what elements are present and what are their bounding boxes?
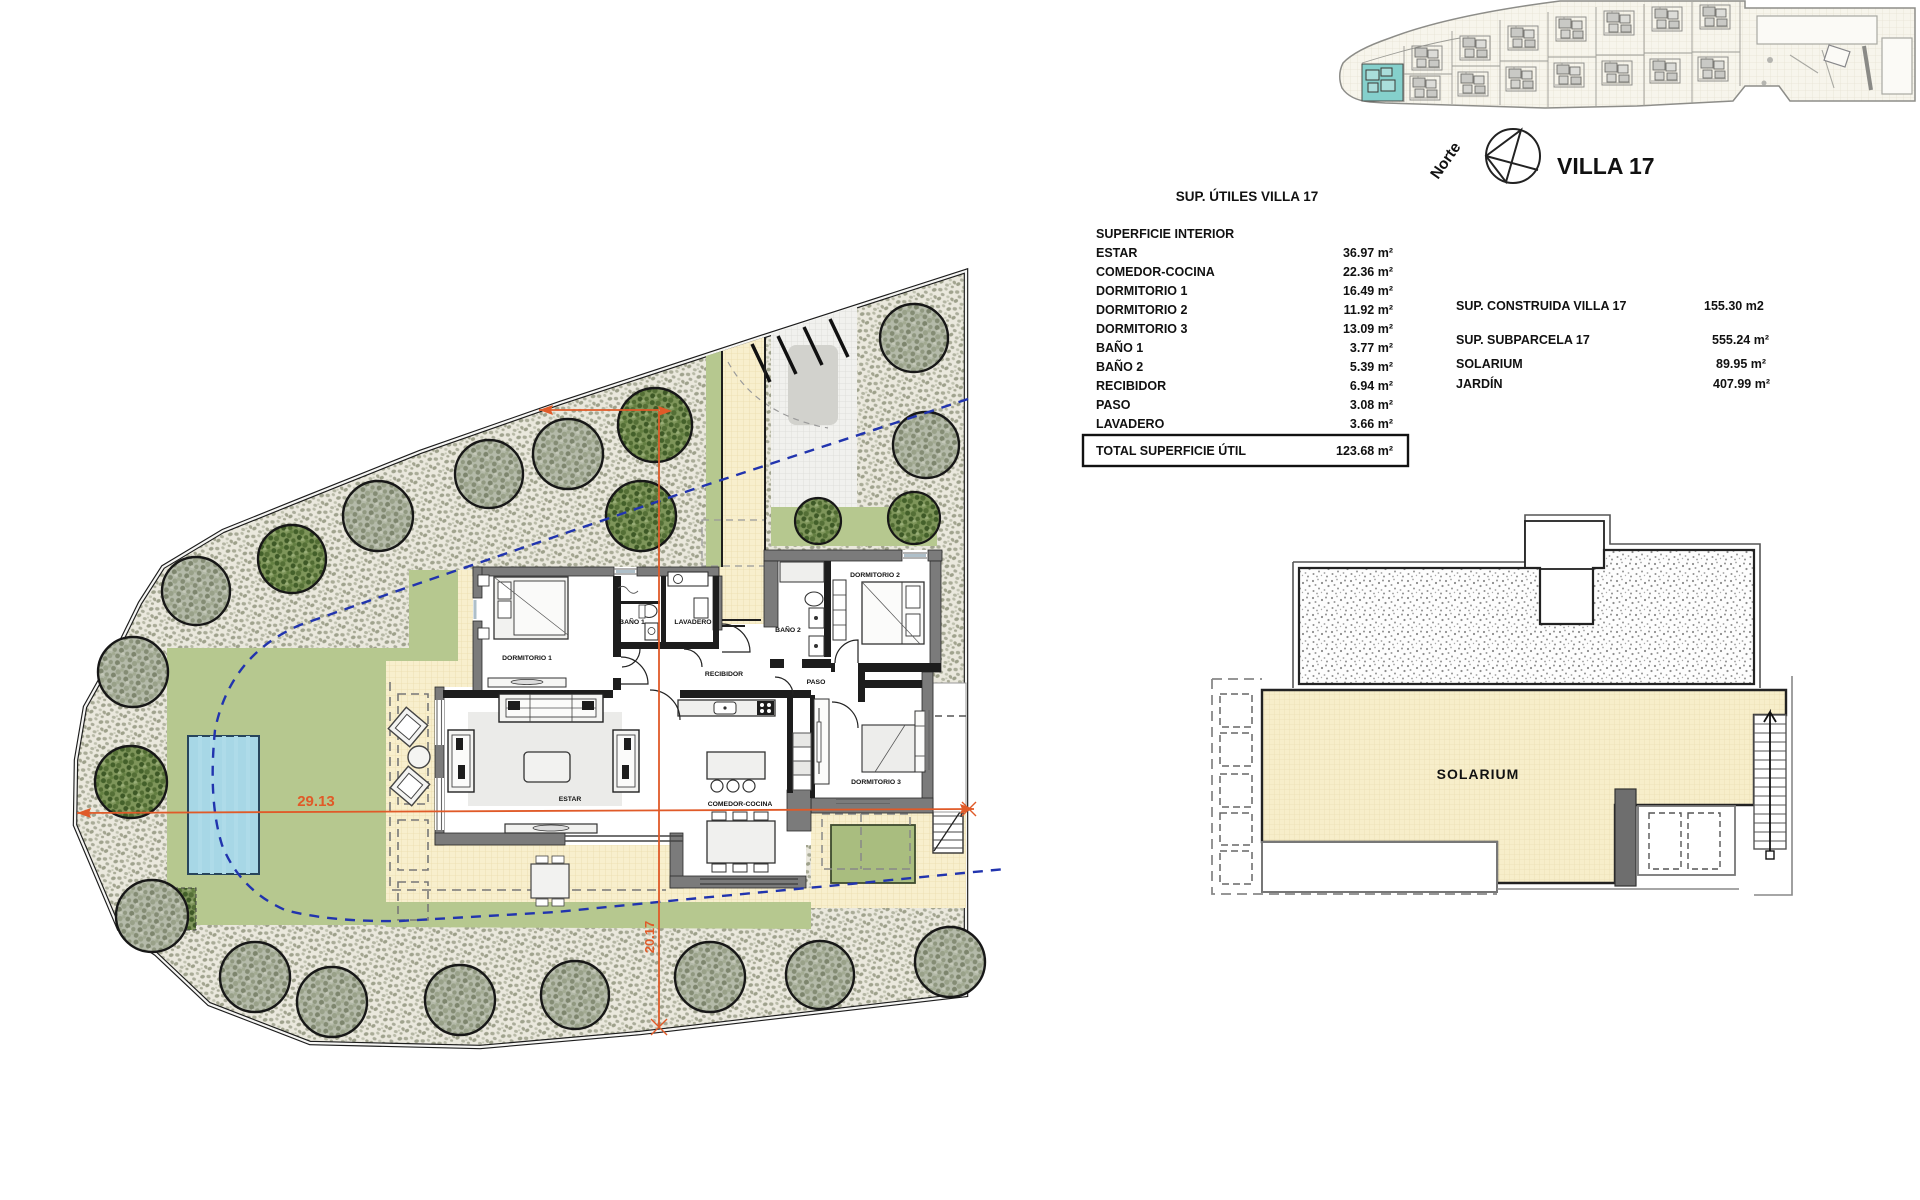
svg-text:89.95 m²: 89.95 m²: [1716, 357, 1766, 371]
svg-text:BAÑO 2: BAÑO 2: [1096, 359, 1143, 374]
svg-text:LAVADERO: LAVADERO: [1096, 417, 1165, 431]
svg-text:DORMITORIO 2: DORMITORIO 2: [1096, 303, 1187, 317]
svg-text:SOLARIUM: SOLARIUM: [1437, 766, 1520, 782]
svg-text:SUP. CONSTRUIDA VILLA 17: SUP. CONSTRUIDA VILLA 17: [1456, 299, 1626, 313]
svg-text:DORMITORIO 1: DORMITORIO 1: [1096, 284, 1187, 298]
svg-text:DORMITORIO 1: DORMITORIO 1: [502, 655, 552, 662]
svg-text:SUPERFICIE INTERIOR: SUPERFICIE INTERIOR: [1096, 227, 1234, 241]
svg-text:22.36 m²: 22.36 m²: [1343, 265, 1393, 279]
svg-text:TOTAL SUPERFICIE ÚTIL: TOTAL SUPERFICIE ÚTIL: [1096, 443, 1246, 458]
svg-text:COMEDOR-COCINA: COMEDOR-COCINA: [708, 801, 773, 808]
svg-text:ESTAR: ESTAR: [1096, 246, 1137, 260]
svg-text:BAÑO 1: BAÑO 1: [619, 617, 645, 626]
svg-text:DORMITORIO 3: DORMITORIO 3: [1096, 322, 1187, 336]
svg-text:6.94 m²: 6.94 m²: [1350, 379, 1393, 393]
svg-text:36.97 m²: 36.97 m²: [1343, 246, 1393, 260]
svg-text:ESTAR: ESTAR: [559, 796, 582, 803]
svg-text:JARDÍN: JARDÍN: [1456, 376, 1503, 391]
svg-text:SUP. ÚTILES VILLA 17: SUP. ÚTILES VILLA 17: [1176, 189, 1319, 204]
svg-text:RECIBIDOR: RECIBIDOR: [705, 671, 743, 678]
svg-text:RECIBIDOR: RECIBIDOR: [1096, 379, 1166, 393]
svg-text:BAÑO 1: BAÑO 1: [1096, 340, 1143, 355]
svg-text:SUP. SUBPARCELA 17: SUP. SUBPARCELA 17: [1456, 333, 1590, 347]
svg-text:DORMITORIO 2: DORMITORIO 2: [850, 572, 900, 579]
svg-text:155.30 m2: 155.30 m2: [1704, 299, 1764, 313]
svg-text:5.39 m²: 5.39 m²: [1350, 360, 1393, 374]
svg-text:11.92 m²: 11.92 m²: [1344, 303, 1393, 317]
svg-text:3.08 m²: 3.08 m²: [1350, 398, 1393, 412]
svg-text:407.99 m²: 407.99 m²: [1713, 377, 1770, 391]
svg-text:LAVADERO: LAVADERO: [674, 619, 711, 626]
svg-text:PASO: PASO: [1096, 398, 1131, 412]
svg-text:123.68 m²: 123.68 m²: [1336, 444, 1393, 458]
svg-text:BAÑO 2: BAÑO 2: [775, 625, 801, 634]
svg-text:3.66 m²: 3.66 m²: [1350, 417, 1393, 431]
svg-text:VILLA 17: VILLA 17: [1557, 153, 1655, 179]
svg-text:COMEDOR-COCINA: COMEDOR-COCINA: [1096, 265, 1215, 279]
svg-text:13.09 m²: 13.09 m²: [1343, 322, 1393, 336]
svg-text:PASO: PASO: [807, 679, 826, 686]
svg-text:16.49 m²: 16.49 m²: [1343, 284, 1393, 298]
svg-text:SOLARIUM: SOLARIUM: [1456, 357, 1523, 371]
svg-text:DORMITORIO 3: DORMITORIO 3: [851, 779, 901, 786]
svg-text:3.77 m²: 3.77 m²: [1350, 341, 1393, 355]
svg-text:29.13: 29.13: [297, 793, 335, 810]
svg-text:20.17: 20.17: [642, 921, 657, 954]
svg-text:555.24 m²: 555.24 m²: [1712, 333, 1769, 347]
